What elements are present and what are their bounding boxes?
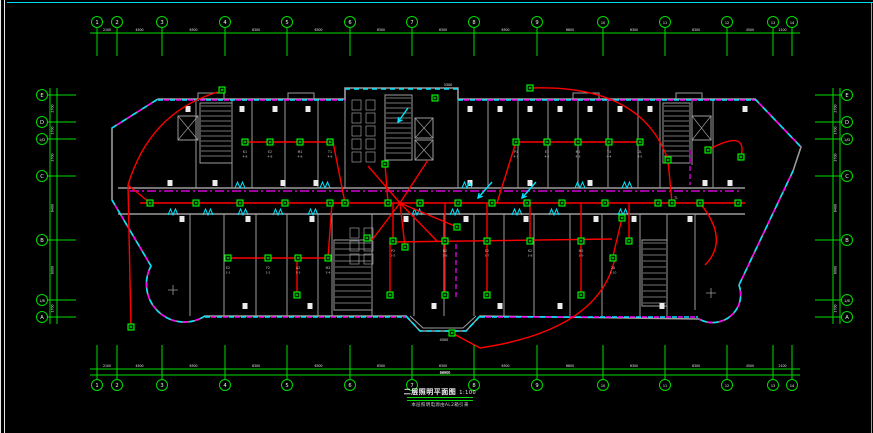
grid-bubble-label: C [845,174,849,180]
grid-bubble-label: A [845,315,849,321]
grid-bubble-label: 2 [115,383,118,389]
dim-text: 2100 [778,364,786,368]
toilet-stall [366,100,375,110]
light-fixture-dot [580,240,582,242]
dim-text: 3700 [51,153,55,161]
wall-block [314,180,319,186]
wall-block [632,216,637,222]
door-swing-symbol [320,182,330,188]
grid-bubble-label: 12 [725,384,729,388]
grid-bubble-label: 3 [160,383,163,389]
grid-bubble-label: 6 [348,383,351,389]
title-block: 二层照明平面图1:100 本层照明电源由AL2箱引来 [375,388,505,408]
circuit-wire [368,166,400,203]
light-fixture-dot [387,202,389,204]
circuit-label: 3-3 [296,271,301,275]
circuit-label: 3-2 [266,271,271,275]
wall-block [306,106,311,112]
wall-block [594,216,599,222]
light-fixture-dot [392,240,394,242]
dim-text: 2100 [778,28,786,32]
flow-arrow [478,182,492,198]
door-swing-symbol [235,182,245,188]
dim-text: 4500 [746,28,754,32]
circuit-wire [452,333,480,348]
toilet-stall [366,126,375,136]
room-label: K1 [243,150,247,154]
parapet-bumps [198,93,702,99]
elevator-x [415,140,433,160]
wall-block [688,216,693,222]
room-label: E2 [485,249,489,253]
circuit-wire [700,203,716,265]
light-fixture-dot [149,202,151,204]
door-swing-symbol [622,182,632,188]
room-label: M2 [579,249,584,253]
grid-bubble-label: 5 [285,20,288,26]
wall-block [498,106,503,112]
grid-bubble-label: 1/D [844,138,850,142]
dim-text: 6600 [566,28,574,32]
bay-window-inner [410,316,476,328]
circuit-label: 4-8 [243,155,248,159]
room-label: P2 [391,249,395,253]
light-fixture-dot [451,332,453,334]
dim-text: 6300 [314,28,322,32]
light-fixture-dot [707,149,709,151]
wall-block [618,106,623,112]
light-fixture-dot [561,202,563,204]
circuit-label: 4-1 [514,155,519,159]
light-fixture-dot [329,141,331,143]
circuit-label: 4-3 [576,155,581,159]
light-fixture-dot [529,87,531,89]
stairwell [334,240,372,310]
toilet-stall [352,100,361,110]
wall-block [498,303,503,309]
floor-plan-canvas: K14-8E24-8M14-8T14-8P14-1E14-2M14-3T44-4… [0,0,873,433]
dim-text: 6300 [189,364,197,368]
wall-block [186,106,191,112]
light-fixture-dot [486,240,488,242]
circuit-wire [668,160,672,203]
toilet-stall [366,152,375,162]
light-fixture-dot [221,89,223,91]
grid-bubble-label: 1/D [39,138,45,142]
stairwell [385,95,412,160]
circuit-label: 3-10 [610,271,617,275]
dim-text: 4500 [135,364,143,368]
flow-arrow [398,108,408,122]
room-label: M1 [298,150,303,154]
light-fixture-dot [284,202,286,204]
light-fixture-dot [740,156,742,158]
room-label: M2 [326,266,331,270]
circuit-wire [400,203,457,227]
stairwell [200,103,232,163]
toilet-stall [350,241,359,251]
dim-text: 6300 [252,28,260,32]
tray-magenta-dash [755,99,801,147]
circuit-wire [400,203,405,247]
light-fixture-dot [628,240,630,242]
wall-block [246,216,251,222]
circuit-label: 4-8 [328,155,333,159]
light-fixture-dot [639,141,641,143]
dim-text: 6300 [439,364,447,368]
grid-bubble-label: E [40,93,43,99]
circuit-label: 4-5 [638,155,643,159]
dim-text: 6300 [692,364,700,368]
door-swing-symbol [575,182,585,188]
grid-bubble-label: 1 [95,20,98,26]
grid-bubble-label: 6 [348,20,351,26]
room-label: P1 [514,150,518,154]
circuit-wire [613,218,622,256]
wall-block [310,216,315,222]
wall-block [468,106,473,112]
light-fixture-dot [434,97,436,99]
cable-tray-dashes [112,89,801,331]
grid-bubble-label: C [40,174,44,180]
title-underline [407,397,473,401]
dim-text: 2100 [103,28,111,32]
grid-bubble-label: 13 [771,384,775,388]
grid-bubble-label: 9 [535,383,538,389]
grid-bubble-label: 8 [472,20,475,26]
dim-text: 6300 [377,364,385,368]
drawing-subtitle: 本层照明电源由AL2箱引来 [375,402,505,408]
circuit-wire [385,164,388,203]
dim-text: 1700 [834,126,838,134]
wall-block [588,106,593,112]
grid-bubble-label: 1/B [844,299,850,303]
light-fixture-dot [130,326,132,328]
circuit-label: 3-5 [391,254,396,258]
dim-text: 6300 [314,364,322,368]
wall-block [432,303,437,309]
circuit-label: 3-6 [443,254,448,258]
room-label: E2 [226,266,230,270]
wall-block [168,180,173,186]
dim-text: 6300 [252,364,260,368]
grid-bubble-label: 5 [285,383,288,389]
drawing-scale: 1:100 [459,390,476,396]
circuit-label: 4-2 [545,155,550,159]
light-fixture-dot [491,202,493,204]
wall-block [308,303,313,309]
light-fixture-dot [667,159,669,161]
dim-text: 4500 [440,338,449,342]
light-fixture-dot [444,240,446,242]
grid-bubble-label: 11 [663,384,667,388]
grid-bubble-label: D [845,120,849,126]
wall-block [743,106,748,112]
dim-text: 3700 [834,153,838,161]
light-fixture-dot [604,202,606,204]
dim-text: 6400 [51,204,55,212]
light-fixture-dot [344,202,346,204]
dim-text: 4500 [746,364,754,368]
dim-text: 3300 [444,83,453,87]
light-fixture-dot [296,294,298,296]
light-fixture-dot [612,257,614,259]
light-fixture-dot [577,141,579,143]
wall-block [528,106,533,112]
dim-text: 6000 [834,266,838,274]
circuit-label: 3-8 [528,254,533,258]
dim-text: 6300 [630,364,638,368]
lighting-devices [128,85,744,336]
light-fixture-dot [384,163,386,165]
wall-block [558,106,563,112]
grid-bubble-label: 2 [115,20,118,26]
wall-block [213,180,218,186]
toilet-stall [366,139,375,149]
wall-block [524,216,529,222]
light-fixture-dot [546,141,548,143]
light-fixture-dot [239,202,241,204]
corridor-walls [118,188,745,214]
dim-text: 2700 [51,104,55,112]
light-fixture-dot [737,202,739,204]
light-fixture-dot [699,202,701,204]
light-fixture-dot [329,202,331,204]
dim-text: 6300 [439,28,447,32]
light-fixture-dot [456,226,458,228]
circuit-label: 4-4 [607,155,612,159]
circuit-wire [128,185,131,327]
light-fixture-dot [608,141,610,143]
circuit-wire [400,203,438,242]
light-fixture-dot [657,202,659,204]
light-fixture-dot [195,202,197,204]
stairwell [663,103,690,163]
room-label: 2L [638,150,642,154]
grid-bubble-label: 13 [771,21,775,25]
wall-block [528,180,533,186]
dim-text: 1700 [834,304,838,312]
circuit-wire [333,142,345,203]
light-fixture-dot [389,294,391,296]
grid-bubble-label: 12 [725,21,729,25]
dim-text: 6300 [501,364,509,368]
tray-magenta-dash [146,266,205,322]
grid-bubble-label: 14 [790,21,794,25]
dim-text: 1700 [51,126,55,134]
dim-text: 6300 [377,28,385,32]
grid-bubble-label: 10 [601,384,605,388]
grid-bubble-label: 1/B [39,299,45,303]
elevator-x [415,118,433,138]
grid-bubble-label: 10 [601,21,605,25]
dim-text: 6600 [566,364,574,368]
dim-text: 4500 [135,28,143,32]
light-fixture-dot [457,202,459,204]
room-label: 2A [611,266,616,270]
circuit-label: 3-7 [485,254,490,258]
toilet-stall [366,113,375,123]
dim-text: 66900 [440,371,450,375]
light-fixture-dot [227,257,229,259]
room-label: M1 [576,150,581,154]
room-label: T1 [327,150,332,154]
dim-text: 2700 [834,104,838,112]
light-fixture-dot [444,294,446,296]
grid-bubble-label: A [40,315,44,321]
wall-block [558,303,563,309]
tray-magenta-dash [699,285,741,323]
light-fixture-dot [486,294,488,296]
light-fixture-dot [526,202,528,204]
light-fixture-dot [580,294,582,296]
wall-block [728,180,733,186]
grid-bubble-label: 11 [663,21,667,25]
light-fixture-dot [267,257,269,259]
grid-bubble-label: 14 [790,384,794,388]
dim-text: 2100 [103,364,111,368]
room-label: A2 [296,266,300,270]
wall-block [703,180,708,186]
wall-block [404,216,409,222]
room-label: K2 [528,249,532,253]
room-label: F2 [266,266,270,270]
light-fixture-dot [297,257,299,259]
circuit-label: 3-4 [326,271,331,275]
room-label: T4 [606,150,611,154]
room-label: B2 [443,249,447,253]
wall-block [281,180,286,186]
tray-cyan-dash [146,266,205,322]
room-label: TL [673,196,678,200]
wall-block [648,106,653,112]
elevator-x [692,116,711,140]
toilet-stall [352,113,361,123]
circuit-label: 3-9 [579,254,584,258]
grid-bubble-label: B [40,238,44,244]
dim-text: 6300 [501,28,509,32]
room-label: E2 [268,150,272,154]
circuit-wire [400,160,428,203]
light-fixture-dot [419,202,421,204]
grid-bubble-label: D [40,120,44,126]
door-swing-symbols [168,108,632,215]
grid-bubble-label: E [845,93,848,99]
room-label: E1 [545,150,549,154]
grid-bubble-label: B [845,238,849,244]
circuit-wire [328,203,332,258]
wall-block [240,106,245,112]
grid-bubble-label: 1 [95,383,98,389]
drawing-title: 二层照明平面图 [404,388,457,396]
light-fixture-dot [529,240,531,242]
toilet-stall [352,126,361,136]
light-fixture-dot [244,141,246,143]
circuit-label: 4-8 [298,155,303,159]
dim-text: 6000 [51,266,55,274]
light-fixture-dot [327,257,329,259]
light-fixture-dot [621,217,623,219]
toilet-stall [352,152,361,162]
cad-viewport[interactable]: K14-8E24-8M14-8T14-8P14-1E14-2M14-3T44-4… [0,0,873,433]
light-fixture-dot [515,141,517,143]
light-fixture-dot [366,237,368,239]
dim-text: 6400 [834,204,838,212]
toilet-stall [350,254,359,264]
wall-block [180,216,185,222]
dim-text: 6300 [189,28,197,32]
grid-bubble-label: 7 [410,20,413,26]
grid-bubble-label: 9 [535,20,538,26]
dim-text: 6300 [692,28,700,32]
elevator-x [178,116,198,140]
toilet-stall [352,139,361,149]
wall-block [464,216,469,222]
light-fixture-dot [404,246,406,248]
circuit-label: 3-1 [226,271,231,275]
wall-block [660,303,665,309]
light-fixture-dot [269,141,271,143]
light-fixture-dot [671,202,673,204]
wall-block [588,180,593,186]
grid-bubble-label: 3 [160,20,163,26]
tray-cyan-dash [699,285,741,323]
light-fixture-dot [299,141,301,143]
dim-text: 1700 [51,304,55,312]
circuit-wire [372,203,400,240]
dim-text: 6300 [630,28,638,32]
wall-block [243,303,248,309]
toilet-stall [350,228,359,238]
wall-block [273,106,278,112]
circuit-label: 4-8 [268,155,273,159]
